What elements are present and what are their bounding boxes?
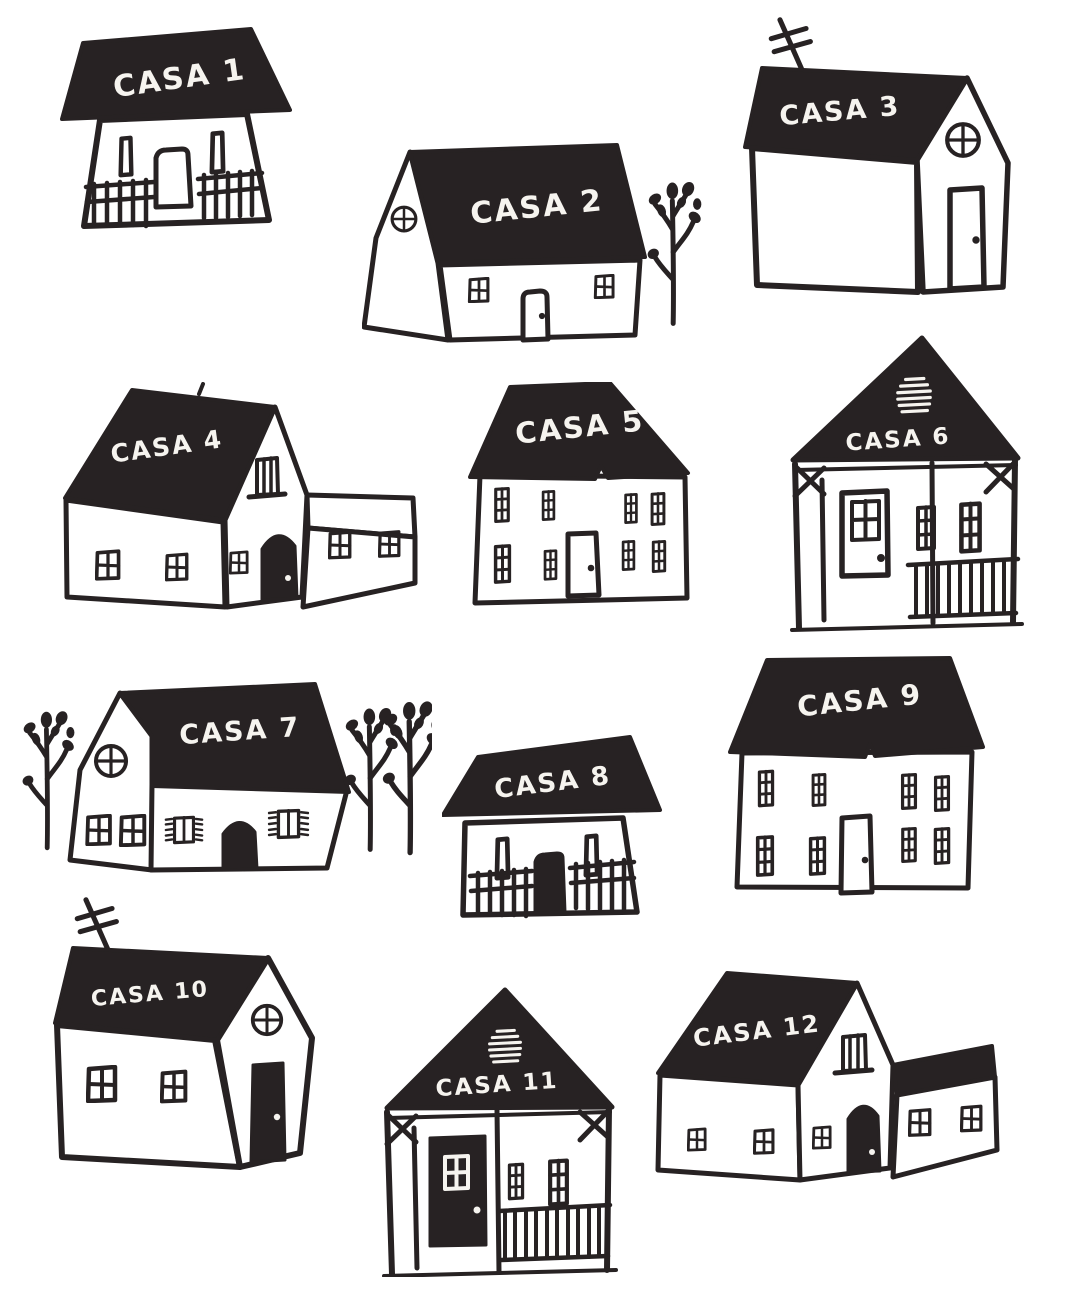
round-window-icon xyxy=(253,1006,282,1035)
tree-icon xyxy=(646,180,703,323)
door-knob-icon xyxy=(878,555,885,562)
round-window-icon xyxy=(96,746,126,776)
casa-11: CASA 11 xyxy=(378,982,623,1277)
tall-window-icon xyxy=(961,504,979,552)
door-knob-icon xyxy=(474,1207,481,1214)
casa-10-side-wall xyxy=(57,1025,240,1167)
casa-10-door xyxy=(251,1063,285,1162)
casa-9: CASA 9 xyxy=(722,652,992,897)
casa-12: CASA 12 xyxy=(647,957,1017,1197)
casa-9-door xyxy=(841,816,872,893)
round-window-icon xyxy=(947,124,979,156)
ridge-tick xyxy=(199,384,203,394)
casa-8-drawing: CASA 8 xyxy=(442,732,667,927)
illustration-canvas: CASA 1 CASA 2 CASA 3 xyxy=(0,0,1080,1294)
casa-7-drawing: CASA 7 xyxy=(12,672,432,887)
casa-6-door xyxy=(842,491,888,576)
door-knob-icon xyxy=(862,857,868,863)
tree-icon xyxy=(21,709,76,847)
door-knob-icon xyxy=(274,1114,280,1120)
casa-10-drawing: CASA 10 xyxy=(42,892,327,1182)
antenna-icon xyxy=(77,900,116,949)
casa-6-railing xyxy=(908,559,1018,617)
casa-2: CASA 2 xyxy=(362,142,707,352)
casa-4-drawing: CASA 4 xyxy=(57,382,422,620)
tall-window-icon xyxy=(509,1164,522,1198)
casa-8-door xyxy=(535,853,565,913)
casa-7-arched-door xyxy=(223,822,257,870)
door-knob-icon xyxy=(588,565,594,571)
casa-12-side-wall xyxy=(658,1075,800,1180)
casa-3-drawing: CASA 3 xyxy=(736,12,1016,302)
antenna-icon xyxy=(771,20,810,69)
casa-10: CASA 10 xyxy=(42,892,327,1182)
door-knob-icon xyxy=(285,575,291,581)
casa-6: CASA 6 xyxy=(782,332,1037,637)
casa-1: CASA 1 xyxy=(52,22,292,237)
casa-3: CASA 3 xyxy=(736,12,1016,302)
casa-1-door xyxy=(156,149,191,207)
door-knob-icon xyxy=(869,1149,875,1155)
casa-4: CASA 4 xyxy=(57,382,422,620)
casa-7: CASA 7 xyxy=(12,672,432,887)
casa-6-drawing: CASA 6 xyxy=(782,332,1037,637)
door-knob-icon xyxy=(973,237,979,243)
tall-window-icon xyxy=(550,1161,567,1205)
casa-5-door xyxy=(568,533,599,596)
casa-11-railing xyxy=(499,1205,610,1260)
casa-5-drawing: CASA 5 xyxy=(458,382,693,607)
casa-8: CASA 8 xyxy=(442,732,667,927)
casa-11-door xyxy=(430,1136,486,1246)
casa-4-arched-door xyxy=(262,536,297,600)
casa-3-side-wall xyxy=(752,148,918,292)
casa-9-drawing: CASA 9 xyxy=(722,652,992,897)
casa-6-porch-frame xyxy=(792,460,1022,630)
casa-5: CASA 5 xyxy=(458,382,693,607)
casa-1-drawing: CASA 1 xyxy=(52,22,292,237)
casa-11-drawing: CASA 11 xyxy=(378,982,623,1277)
casa-2-drawing: CASA 2 xyxy=(362,142,707,352)
round-window-icon xyxy=(392,207,416,231)
door-knob-icon xyxy=(539,313,544,318)
casa-12-drawing: CASA 12 xyxy=(647,957,1017,1197)
casa-11-porch-frame xyxy=(384,1108,616,1276)
casa-12-arched-door xyxy=(848,1106,880,1172)
tree-icon xyxy=(381,699,432,852)
